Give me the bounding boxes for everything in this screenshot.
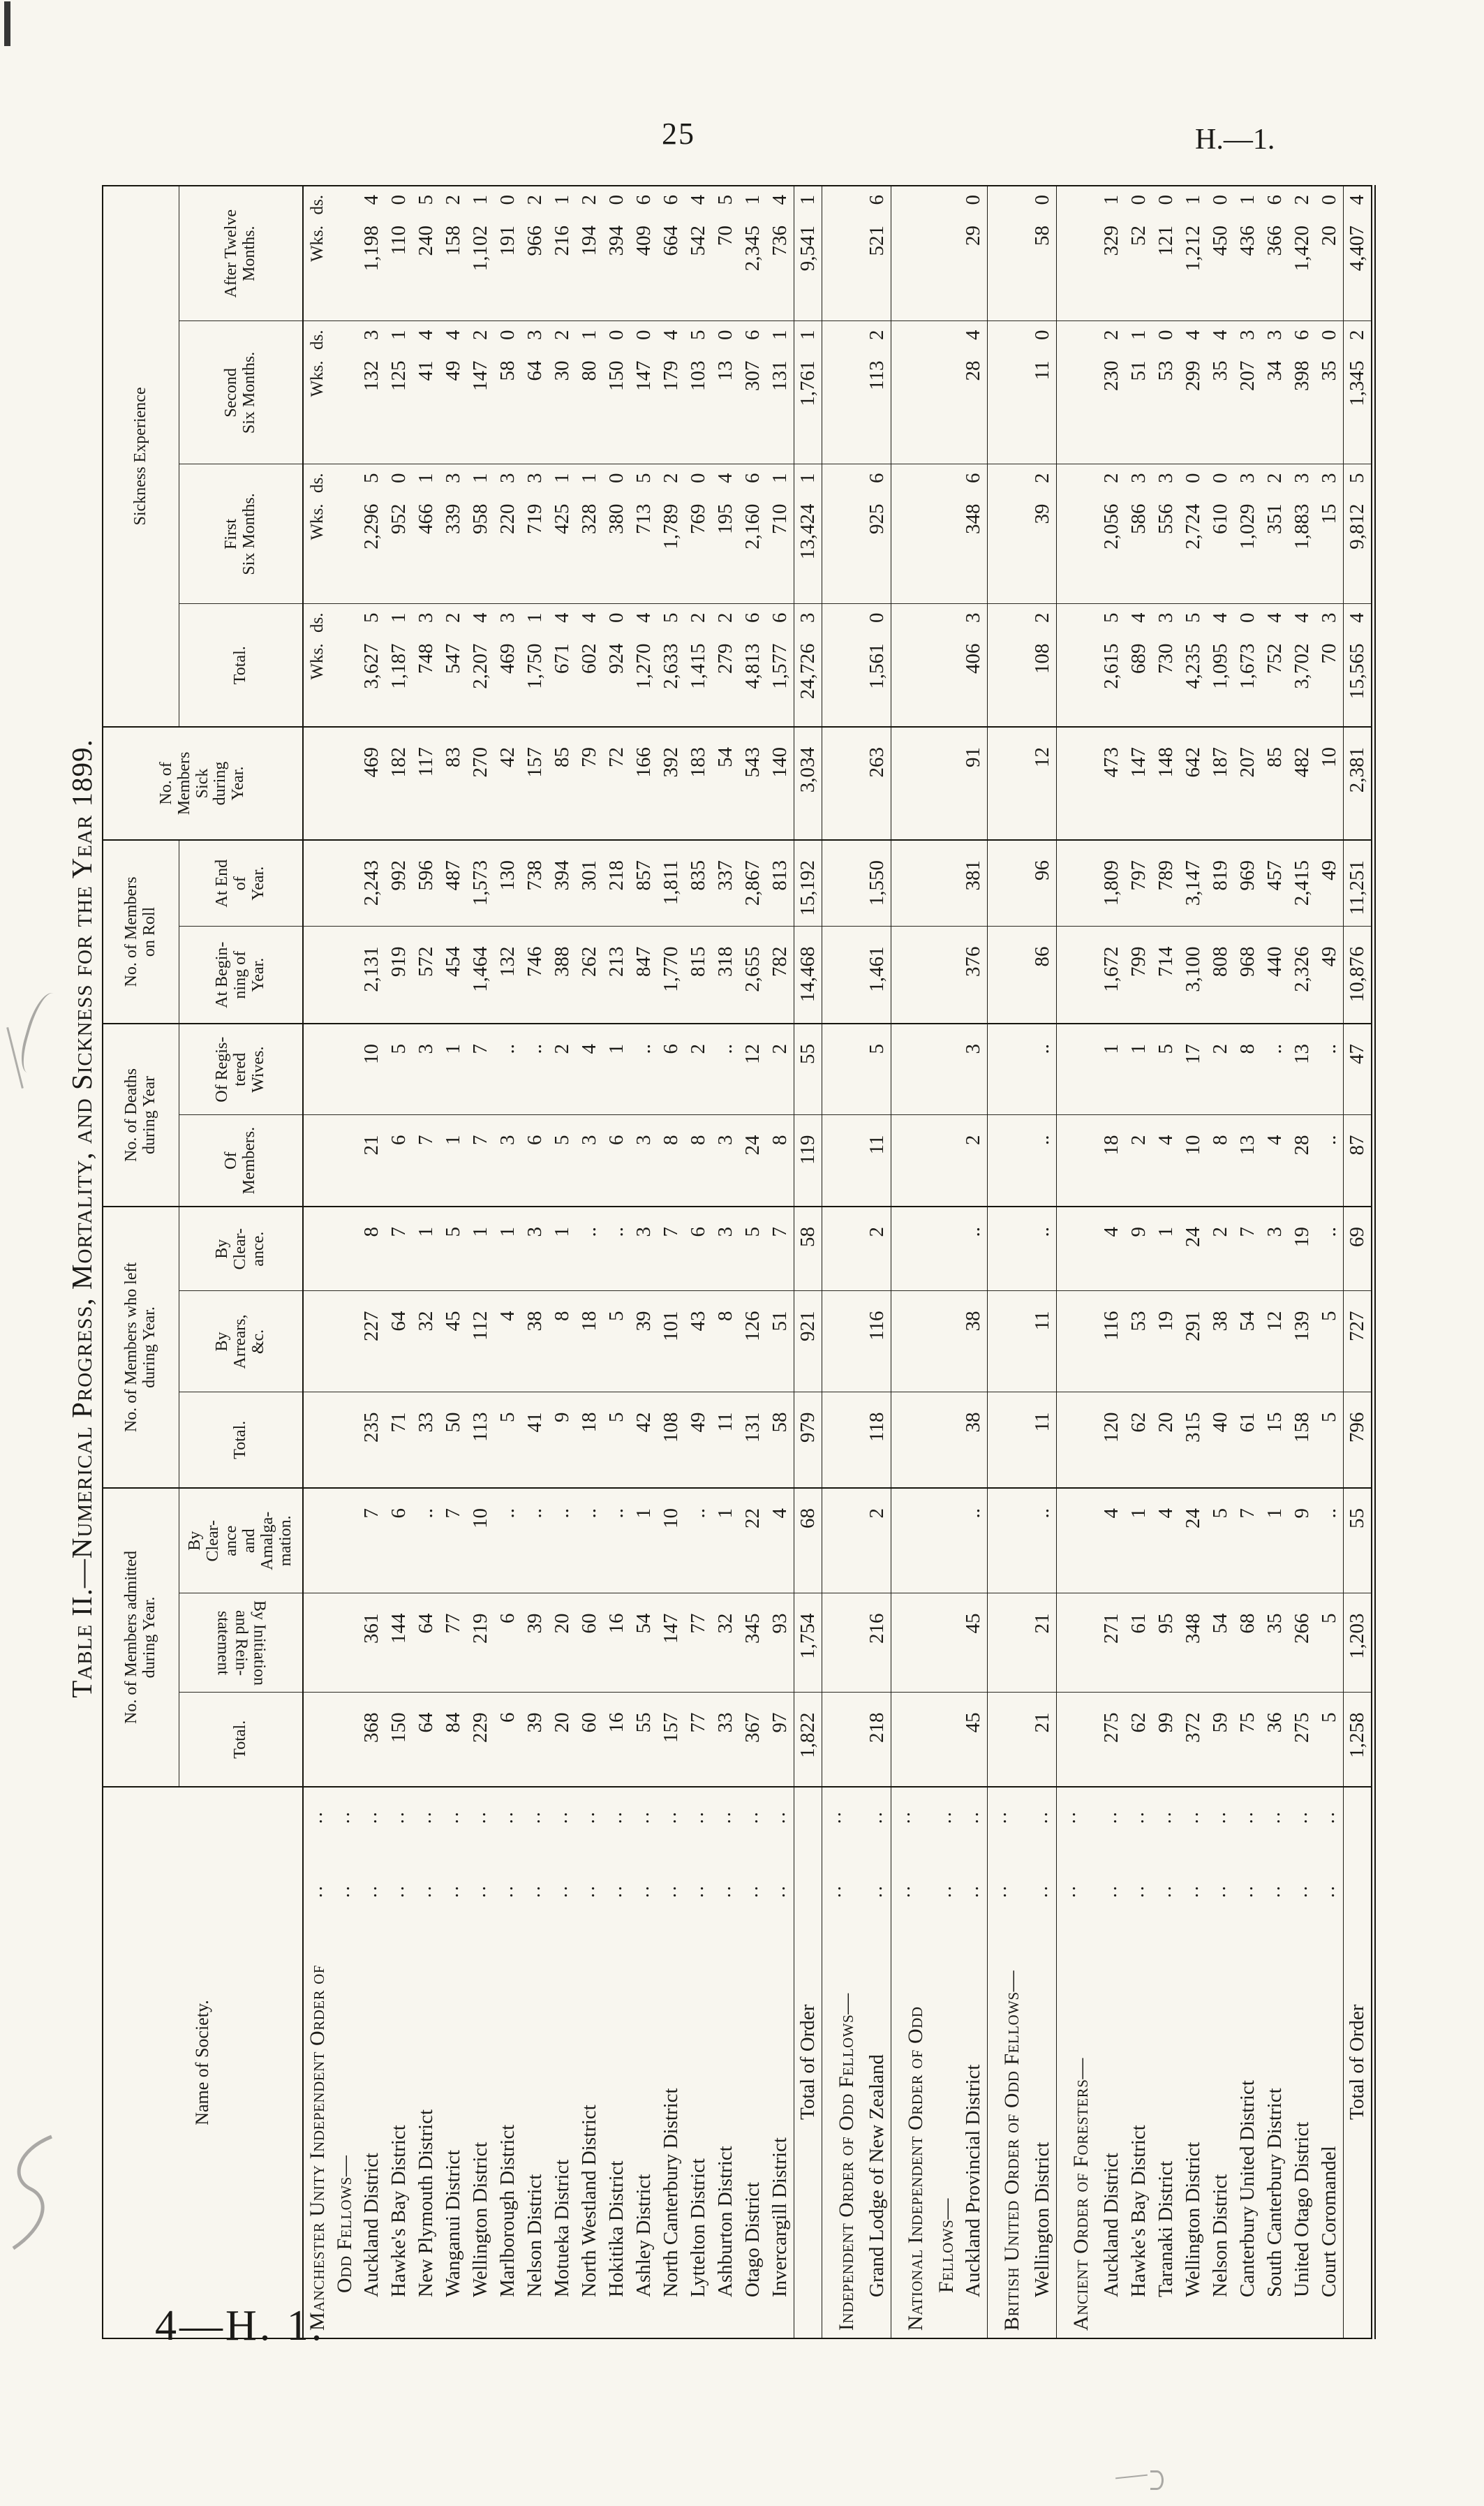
value-cell: 12 <box>1029 727 1057 840</box>
sickness-value-cell: 9,5411 <box>794 186 822 321</box>
empty-cell <box>303 927 331 1024</box>
empty-cell <box>1057 1593 1099 1693</box>
days-value: 1 <box>470 186 491 220</box>
wks-ds-pair: 1132 <box>867 321 887 464</box>
value-cell: 116 <box>1098 1291 1125 1392</box>
society-name-cell: Ashley District.... <box>630 1787 658 2338</box>
days-value: 2 <box>1101 464 1122 498</box>
empty-cell <box>933 927 960 1024</box>
society-name-cell: Hawke's Bay District.... <box>1125 1787 1152 2338</box>
wks-ds-pair: 1,1871 <box>389 604 409 726</box>
value-cell: 3,034 <box>794 727 822 840</box>
sickness-unit-cell <box>933 321 960 464</box>
value-cell: 10 <box>658 1488 685 1593</box>
days-value: 0 <box>1183 464 1203 498</box>
empty-cell <box>891 1693 933 1787</box>
leader-dots: .. <box>1155 1884 1175 1898</box>
district-row: Court Coromandel....55..55......49491070… <box>1316 186 1344 2338</box>
wks-ds-pair: 2203 <box>498 464 518 603</box>
wks-ds-pair: 1470 <box>634 321 654 464</box>
sickness-unit-cell <box>891 604 933 727</box>
society-name: Total of Order <box>1347 2005 1367 2338</box>
weeks-value: 11 <box>1032 355 1053 464</box>
days-value: 3 <box>1238 464 1258 498</box>
society-name-cell: Auckland Provincial District.... <box>960 1787 988 2338</box>
days-value: 0 <box>389 464 409 498</box>
days-value: 4 <box>416 321 436 355</box>
days-value: 0 <box>498 186 518 220</box>
sickness-value-cell: 2302 <box>1098 321 1125 464</box>
weeks-label: Wks. <box>309 355 326 464</box>
weeks-value: 394 <box>607 220 627 321</box>
society-name: North Canterbury District <box>661 2088 681 2338</box>
days-value: 5 <box>1183 604 1203 637</box>
society-name-cell: Canterbury United District.... <box>1234 1787 1261 2338</box>
value-cell: 2,415 <box>1289 840 1316 927</box>
society-name: Auckland Provincial District <box>963 2065 984 2338</box>
days-value: 4 <box>661 321 681 355</box>
leader-dots: .. <box>1155 1810 1175 1824</box>
wks-ds-pair: 4063 <box>963 604 984 726</box>
weeks-value: 1,577 <box>770 637 790 726</box>
value-cell: 2 <box>766 1024 794 1115</box>
value-cell: 5 <box>1207 1488 1234 1593</box>
value-cell: 4 <box>1261 1115 1289 1207</box>
value-cell: 144 <box>385 1593 413 1693</box>
value-cell: 95 <box>1152 1593 1180 1693</box>
weeks-value: 2,615 <box>1101 637 1122 726</box>
value-cell: 85 <box>1261 727 1289 840</box>
wks-ds-pair: 3281 <box>579 464 600 603</box>
weeks-value: 398 <box>1292 355 1312 464</box>
value-cell: 11 <box>712 1392 739 1488</box>
value-cell: 97 <box>766 1693 794 1787</box>
value-cell: 12 <box>1261 1291 1289 1392</box>
society-name: National Independent Order of Odd <box>905 2007 926 2338</box>
empty-cell <box>933 1207 960 1291</box>
sickness-value-cell: 24,7263 <box>794 604 822 727</box>
value-cell: 5 <box>440 1207 467 1291</box>
value-cell: 3,100 <box>1180 927 1207 1024</box>
days-value: 1 <box>579 464 600 498</box>
value-cell: 3 <box>521 1207 549 1291</box>
value-cell: 819 <box>1207 840 1234 927</box>
society-name-cell: North Canterbury District.... <box>658 1787 685 2338</box>
sickness-value-cell: 2,1606 <box>739 464 766 604</box>
document-reference: H.—1. <box>1195 123 1275 156</box>
days-value: 0 <box>1210 464 1231 498</box>
value-cell: 2 <box>863 1488 891 1593</box>
value-cell: 119 <box>794 1115 822 1207</box>
empty-cell <box>891 1392 933 1488</box>
weeks-value: 13,424 <box>798 498 818 603</box>
sickness-value-cell: 3666 <box>1261 186 1289 321</box>
total-row: Total of Order1,2581,2035579672769874710… <box>1344 186 1374 2338</box>
leader-dots: .. <box>1182 1810 1202 1824</box>
wks-ds-pair: 4361 <box>1238 186 1258 321</box>
weeks-value: 328 <box>579 498 600 603</box>
value-cell: 35 <box>1261 1593 1289 1693</box>
value-cell: 968 <box>1234 927 1261 1024</box>
value-cell: .. <box>1029 1024 1057 1115</box>
leader-dots: .. <box>1060 1884 1079 1898</box>
weeks-value: 966 <box>525 220 545 321</box>
value-cell: 15 <box>1261 1392 1289 1488</box>
sickness-value-cell: 9581 <box>467 464 494 604</box>
wks-ds-pair: 511 <box>1129 321 1149 464</box>
wks-ds-pair: 1,4202 <box>1292 186 1312 321</box>
leader-dots: .. <box>334 1810 353 1824</box>
value-cell: 835 <box>685 840 712 927</box>
empty-cell <box>933 1115 960 1207</box>
wks-ds-pair: 9240 <box>607 604 627 726</box>
society-name-cell: Total of Order <box>794 1787 822 2338</box>
sickness-value-cell: 643 <box>521 321 549 464</box>
value-cell: 6 <box>385 1488 413 1593</box>
days-value: 4 <box>688 186 708 220</box>
value-cell: 20 <box>1152 1392 1180 1488</box>
empty-cell <box>891 727 933 840</box>
wks-ds-pair: 153 <box>1319 464 1340 603</box>
empty-cell <box>331 727 358 840</box>
society-name: Wanganui District <box>443 2150 463 2338</box>
weeks-value: 158 <box>443 220 463 321</box>
wks-ds-pair: 1,0293 <box>1238 464 1258 603</box>
leader-dots: .. <box>1060 1810 1079 1824</box>
value-cell: 14,468 <box>794 927 822 1024</box>
sickness-value-cell: 1,1021 <box>467 186 494 321</box>
value-cell: 1 <box>1125 1024 1152 1115</box>
value-cell: 8 <box>685 1115 712 1207</box>
sickness-unit-cell <box>988 604 1030 727</box>
district-row: North Canterbury District....15714710108… <box>658 186 685 2338</box>
society-name-cell: Nelson District.... <box>1207 1787 1234 2338</box>
value-cell: 213 <box>603 927 630 1024</box>
value-cell: 2 <box>863 1207 891 1291</box>
leader-dots: .. <box>524 1810 544 1824</box>
weeks-value: 752 <box>1265 637 1285 726</box>
empty-cell <box>331 1693 358 1787</box>
days-value: 3 <box>1156 464 1176 498</box>
pencil-squiggle <box>3 2130 66 2255</box>
value-cell: 77 <box>685 1693 712 1787</box>
value-cell: 919 <box>385 927 413 1024</box>
rotated-table-title: Table II.—Numerical Progress, Mortality,… <box>59 677 105 1760</box>
sickness-value-cell: 1,8833 <box>1289 464 1316 604</box>
leader-dots: .. <box>1182 1884 1202 1898</box>
sickness-value-cell: 3986 <box>1289 321 1316 464</box>
empty-cell <box>933 1291 960 1392</box>
value-cell: 10,876 <box>1344 927 1374 1024</box>
sickness-value-cell: 200 <box>1316 186 1344 321</box>
value-cell: 7 <box>658 1207 685 1291</box>
value-cell: 4 <box>1152 1488 1180 1593</box>
leader-dots: .. <box>388 1810 408 1824</box>
sickness-value-cell: 2,6155 <box>1098 604 1125 727</box>
days-value: 4 <box>1129 604 1149 637</box>
scan-edge-artifact <box>4 1 10 46</box>
empty-cell <box>331 1207 358 1291</box>
district-row: Auckland Provincial District....4545..38… <box>960 186 988 2338</box>
sickness-value-cell: 4,8136 <box>739 604 766 727</box>
value-cell: .. <box>1029 1115 1057 1207</box>
days-value: 0 <box>1032 321 1053 355</box>
days-value: 4 <box>1347 604 1367 637</box>
days-value: 2 <box>552 321 572 355</box>
value-cell: 799 <box>1125 927 1152 1024</box>
value-cell: 275 <box>1098 1693 1125 1787</box>
wks-ds-pair: 580 <box>498 321 518 464</box>
value-cell: 126 <box>739 1291 766 1392</box>
value-cell: 235 <box>358 1392 385 1488</box>
society-name: Hokitika District <box>607 2160 627 2338</box>
weeks-value: 406 <box>963 637 984 726</box>
wks-ds-pair: 1210 <box>1156 186 1176 321</box>
district-row: Taranaki District....9995420191457147891… <box>1152 186 1180 2338</box>
sickness-value-cell: 2994 <box>1180 321 1207 464</box>
society-name-cell: Hokitika District.... <box>603 1787 630 2338</box>
wks-ds-pair: 2,1606 <box>743 464 763 603</box>
weeks-value: 366 <box>1265 220 1285 321</box>
leader-dots: .. <box>715 1810 734 1824</box>
sickness-value-cell: 1251 <box>385 321 413 464</box>
sickness-value-cell: 5216 <box>863 186 891 321</box>
value-cell: .. <box>603 1207 630 1291</box>
sickness-value-cell: 5472 <box>440 604 467 727</box>
leader-dots: .. <box>825 1884 845 1898</box>
value-cell: 131 <box>739 1392 766 1488</box>
value-cell: 33 <box>712 1693 739 1787</box>
value-cell: 3 <box>960 1024 988 1115</box>
weeks-value: 1,212 <box>1183 220 1203 321</box>
wks-ds-pair: 9520 <box>389 464 409 603</box>
weeks-value: 602 <box>579 637 600 726</box>
sickness-value-cell: 2,0562 <box>1098 464 1125 604</box>
days-label: ds. <box>309 464 326 498</box>
days-value: 5 <box>362 604 382 637</box>
value-cell: 4 <box>576 1024 603 1115</box>
wks-ds-pair: 1,5610 <box>867 604 887 726</box>
empty-cell <box>891 1115 933 1207</box>
value-cell: 1,811 <box>658 840 685 927</box>
sickness-value-cell: 2,2074 <box>467 604 494 727</box>
district-row: Nelson District....3939..413836..7467381… <box>521 186 549 2338</box>
value-cell: 16 <box>603 1593 630 1693</box>
value-cell: 85 <box>549 727 576 840</box>
value-cell: 72 <box>603 727 630 840</box>
days-value: 0 <box>1210 186 1231 220</box>
weeks-value: 4,407 <box>1347 220 1367 321</box>
value-cell: .. <box>1316 1488 1344 1593</box>
value-cell: 454 <box>440 927 467 1024</box>
district-row: United Otago District....275266915813919… <box>1289 186 1316 2338</box>
society-name: Total of Order <box>798 2005 818 2338</box>
empty-cell <box>988 927 1030 1024</box>
empty-cell <box>331 1593 358 1693</box>
wks-ds-pair: 7690 <box>688 464 708 603</box>
society-name: Lyttelton District <box>688 2158 708 2338</box>
wks-ds-pair: 2,3451 <box>743 186 763 321</box>
leader-dots: .. <box>1264 1884 1284 1898</box>
weeks-value: 2,056 <box>1101 498 1122 603</box>
empty-cell <box>933 1593 960 1693</box>
weeks-value: 132 <box>362 355 382 464</box>
leader-dots: .. <box>660 1810 680 1824</box>
value-cell: 270 <box>467 727 494 840</box>
value-cell: 38 <box>960 1291 988 1392</box>
weeks-value: 1,883 <box>1292 498 1312 603</box>
wks-ds-pair: 4251 <box>552 464 572 603</box>
value-cell: 9 <box>1289 1488 1316 1593</box>
value-cell: 337 <box>712 840 739 927</box>
sickness-value-cell: 9,8125 <box>1344 464 1374 604</box>
value-cell: 1,203 <box>1344 1593 1374 1693</box>
value-cell: 1,573 <box>467 840 494 927</box>
wks-ds-pair: 6894 <box>1129 604 1149 726</box>
value-cell: 5 <box>1316 1593 1344 1693</box>
wks-ds-pair: 1251 <box>389 321 409 464</box>
value-cell: 10 <box>1316 727 1344 840</box>
value-cell: 229 <box>467 1693 494 1787</box>
value-cell: 21 <box>1029 1593 1057 1693</box>
value-cell: 1 <box>1152 1207 1180 1291</box>
value-cell: 7 <box>1234 1207 1261 1291</box>
value-cell: 4 <box>1152 1115 1180 1207</box>
days-value: 3 <box>498 604 518 637</box>
value-cell: 10 <box>358 1024 385 1115</box>
society-name: Manchester Unity Independent Order of <box>307 1965 328 2338</box>
value-cell: 58 <box>794 1207 822 1291</box>
weeks-value: 1,095 <box>1210 637 1231 726</box>
value-cell: 808 <box>1207 927 1234 1024</box>
wks-ds-pair: 1,0954 <box>1210 604 1231 726</box>
wks-ds-pair: 1035 <box>688 321 708 464</box>
days-value: 1 <box>416 464 436 498</box>
sickness-value-cell: 7135 <box>630 464 658 604</box>
days-value: 5 <box>688 321 708 355</box>
empty-cell <box>891 927 933 1024</box>
sickness-value-cell: 2203 <box>494 464 521 604</box>
leader-dots: .. <box>769 1884 789 1898</box>
sickness-value-cell: 354 <box>1207 321 1234 464</box>
empty-cell <box>988 1207 1030 1291</box>
weeks-value: 710 <box>770 498 790 603</box>
weeks-value: 110 <box>389 220 409 321</box>
days-value: 0 <box>1156 186 1176 220</box>
weeks-value: 3,702 <box>1292 637 1312 726</box>
sickness-value-cell: 1,5776 <box>766 604 794 727</box>
weeks-value: 469 <box>498 637 518 726</box>
leader-dots: .. <box>470 1810 489 1824</box>
sickness-value-cell: 302 <box>549 321 576 464</box>
weeks-value: 29 <box>963 220 984 321</box>
society-name-cell: British United Order of Odd Fellows—.... <box>988 1787 1030 2338</box>
sickness-value-cell: 580 <box>1029 186 1057 321</box>
society-name-cell: Grand Lodge of New Zealand.... <box>863 1787 891 2338</box>
days-value: 1 <box>743 186 763 220</box>
wks-ds-pair: 520 <box>1129 186 1149 321</box>
leader-dots: .. <box>551 1810 571 1824</box>
value-cell: 642 <box>1180 727 1207 840</box>
days-value: 6 <box>743 464 763 498</box>
leader-dots: .. <box>1128 1810 1148 1824</box>
value-cell: 2,243 <box>358 840 385 927</box>
empty-cell <box>822 1392 864 1488</box>
value-cell: 368 <box>358 1693 385 1787</box>
sickness-value-cell: 1311 <box>766 321 794 464</box>
wks-ds-pair: 1,4152 <box>688 604 708 726</box>
weeks-value: 1,673 <box>1238 637 1258 726</box>
society-name: Odd Fellows— <box>334 2155 355 2338</box>
value-cell: 132 <box>494 927 521 1024</box>
leader-dots: .. <box>415 1884 435 1898</box>
empty-cell <box>331 1392 358 1488</box>
leader-dots: .. <box>963 1810 982 1824</box>
sub-header: Second Six Months. <box>179 321 304 464</box>
value-cell: 1 <box>1098 1024 1125 1115</box>
sickness-value-cell: 7524 <box>1261 604 1289 727</box>
days-value: 3 <box>798 604 818 637</box>
empty-cell <box>303 1593 331 1693</box>
district-row: Hokitika District....1616..55..612132187… <box>603 186 630 2338</box>
days-value: 3 <box>525 321 545 355</box>
value-cell: 5 <box>1316 1392 1344 1488</box>
total-row: Total of Order1,8221,7546897992158119551… <box>794 186 822 2338</box>
value-cell: 4 <box>494 1291 521 1392</box>
value-cell: 263 <box>863 727 891 840</box>
days-value: 2 <box>470 321 491 355</box>
wks-ds-pair: 2994 <box>1183 321 1203 464</box>
weeks-value: 150 <box>607 355 627 464</box>
value-cell: 1,822 <box>794 1693 822 1787</box>
wks-ds-pair: 3291 <box>1101 186 1122 321</box>
wks-ds-pair: 7524 <box>1265 604 1285 726</box>
district-row: Canterbury United District....7568761547… <box>1234 186 1261 2338</box>
wks-ds-pair: 3512 <box>1265 464 1285 603</box>
sickness-value-cell: 1,0954 <box>1207 604 1234 727</box>
wks-ds-pair: 1582 <box>443 186 463 321</box>
value-cell: 469 <box>358 727 385 840</box>
district-row: Motueka District....2020..98152388394856… <box>549 186 576 2338</box>
sickness-value-cell: 1210 <box>1152 186 1180 321</box>
group-heading-row: National Independent Order of Odd.... <box>891 186 933 2338</box>
value-cell: 49 <box>1316 927 1344 1024</box>
district-row: Wellington District....22921910113112177… <box>467 186 494 2338</box>
value-cell: 6 <box>521 1115 549 1207</box>
society-name: Otago District <box>743 2182 763 2338</box>
district-row: Ashley District....55541423933..84785716… <box>630 186 658 2338</box>
wks-ds-pair: 6714 <box>552 604 572 726</box>
value-cell: 2,867 <box>739 840 766 927</box>
empty-cell <box>933 1488 960 1593</box>
empty-cell <box>1057 1291 1099 1392</box>
wks-ds-pair: 3800 <box>607 464 627 603</box>
value-cell: 2 <box>1207 1207 1234 1291</box>
wks-ds-pair: 7101 <box>770 464 790 603</box>
group-header-admitted: No. of Members admitted during Year. <box>103 1488 179 1787</box>
wks-ds-pair: 24,7263 <box>798 604 818 726</box>
value-cell: 216 <box>863 1593 891 1693</box>
society-name: Invercargill District <box>770 2137 790 2338</box>
empty-cell <box>891 1207 933 1291</box>
leader-dots: .. <box>688 1884 707 1898</box>
empty-cell <box>331 1488 358 1593</box>
wks-ds-pair: 2,6335 <box>661 604 681 726</box>
value-cell: 6 <box>685 1207 712 1291</box>
weeks-value: 207 <box>1238 355 1258 464</box>
sickness-value-cell: 1,3452 <box>1344 321 1374 464</box>
value-cell: 6 <box>385 1115 413 1207</box>
